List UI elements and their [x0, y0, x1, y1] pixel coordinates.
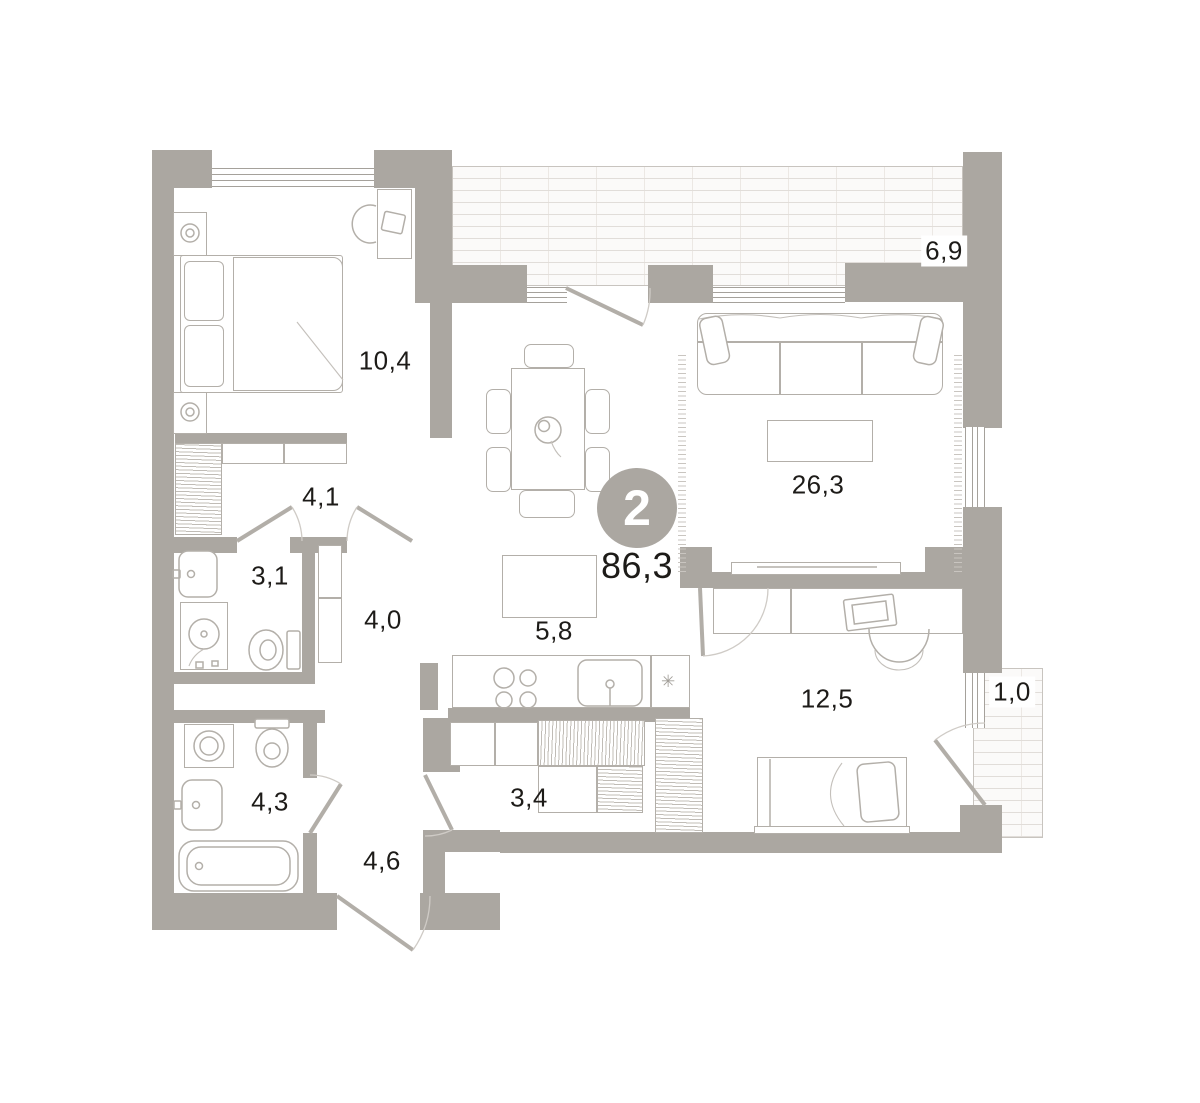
door-closet: [425, 775, 452, 836]
vase-with-flower: [535, 417, 561, 457]
kitchen-sink: [578, 660, 642, 706]
door-loggia: [566, 288, 650, 325]
bathroom-sink: [174, 780, 222, 830]
plan-linework: [0, 0, 1200, 1103]
bathroom-sink: [173, 551, 217, 597]
sofa-back-curves: [699, 315, 942, 320]
door-bedroom-2: [700, 588, 768, 656]
desk-chair: [869, 629, 929, 662]
washing-machine-drum: [194, 731, 224, 761]
door-wardrobe-bathroom-1: [237, 507, 302, 541]
desk-chair: [352, 205, 376, 243]
sofa-armrest-cushion: [698, 315, 730, 366]
shower-head: [189, 619, 219, 668]
door-entrance: [337, 896, 430, 950]
toilet: [255, 719, 289, 767]
nightstand-lamp: [181, 403, 199, 421]
blanket-fold: [297, 322, 343, 380]
desk-chair-seat: [875, 650, 923, 670]
sofa-armrest-cushion: [912, 315, 944, 366]
door-bathroom-2: [310, 775, 341, 833]
blanket-fold: [830, 763, 844, 826]
stove-burners: [494, 668, 536, 708]
door-balcony: [935, 723, 985, 805]
toilet: [249, 630, 300, 670]
laptop: [843, 594, 896, 631]
door-bedroom-main: [347, 507, 412, 541]
nightstand-lamp: [181, 224, 199, 242]
pillow: [857, 761, 900, 822]
bathtub: [179, 841, 298, 891]
floor-plan: ✳ 10,4 4,1 3,1 4,0 5,8 26,3 6,9 12,5 1,0…: [0, 0, 1200, 1103]
laptop: [381, 211, 405, 234]
